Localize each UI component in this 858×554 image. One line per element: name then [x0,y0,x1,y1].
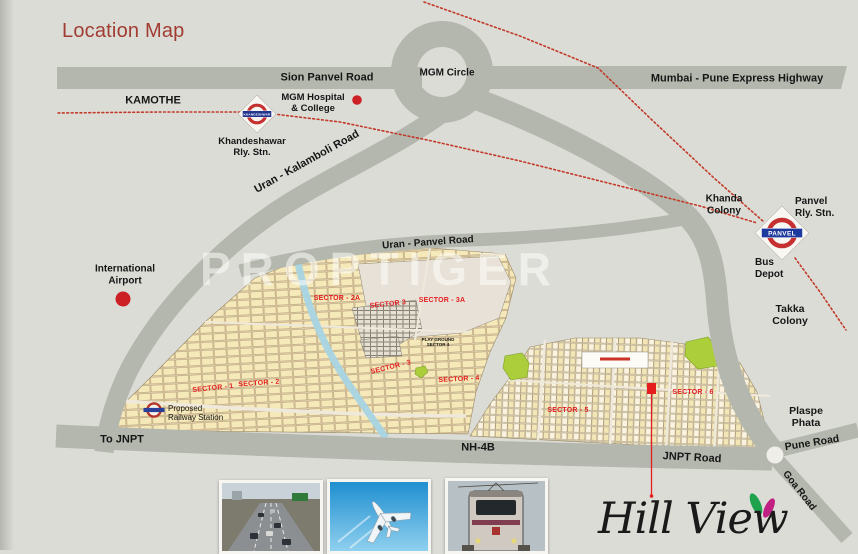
khanda-line2: Colony [706,205,743,217]
road-label-nh4b: NH-4B [461,442,495,455]
junction-circle [767,447,784,464]
page-title: Location Map [62,20,184,43]
building-strip-label [600,358,630,361]
station-label-khandeshawar: Khandeshawar Rly. Stn. [218,137,286,159]
place-label-airport: International Airport [95,264,155,287]
play-ground-label: PLAY GROUND SECTOR 4 [422,337,455,347]
place-label-khanda-colony: Khanda Colony [706,194,743,217]
place-label-mgm-hospital: MGM Hospital & College [281,93,344,115]
location-map-page: { "title": "Location Map", "watermark": … [0,0,858,550]
train-image [448,481,545,551]
panvel-line1: Panvel [795,196,834,208]
takka-line2: Colony [772,315,808,327]
station-logo-text: KHANDESHWAR [244,112,272,116]
mgm-hospital-line2: & College [281,104,344,115]
sector-label-3a: SECTOR - 3A [419,297,465,305]
park-green-1 [503,353,529,380]
photo-highway [219,480,323,554]
station-logo-khandeshawar: KHANDESHWAR [238,95,276,133]
brand-logotype: Hill View [598,494,788,544]
airplane-image [330,482,428,551]
airport-line2: Airport [95,275,155,287]
khandeshawar-line2: Rly. Stn. [218,148,286,159]
mgm-hospital-dot [352,95,362,105]
sector-label-2a: SECTOR - 2A [314,295,360,303]
photo-train [445,478,548,554]
proposed-line1: Proposed [168,404,223,413]
airport-line1: International [95,264,155,276]
station-logo-text: PANVEL [768,230,796,237]
place-label-plaspe-phata: Plaspe Phata [789,405,823,429]
highway-image [222,483,320,551]
road-label-sion-panvel: Sion Panvel Road [281,72,374,85]
road-label-to-jnpt: To JNPT [100,434,144,447]
plaspe-line1: Plaspe [789,405,823,417]
bus-depot-line2: Depot [755,269,783,281]
site-marker-plot [647,383,656,394]
road-label-mumbai-pune: Mumbai - Pune Express Highway [651,73,823,86]
station-namebar [144,408,165,412]
photo-airplane [327,479,431,554]
takka-line1: Takka [772,303,808,315]
proposed-line2: Railway Station [168,413,223,422]
play-ground-line2: SECTOR 4 [422,342,455,347]
place-label-bus-depot: Bus Depot [755,257,783,280]
sector-label-6: SECTOR - 6 [672,389,713,397]
airport-dot [116,292,131,307]
dense-gaothan-area-2 [360,336,402,358]
sector-label-5: SECTOR - 5 [547,407,588,415]
station-label-proposed: Proposed Railway Station [168,404,223,422]
khanda-line1: Khanda [706,194,743,206]
place-label-kamothe: KAMOTHE [125,95,181,108]
road-label-mgm-circle: MGM Circle [419,67,474,79]
station-label-panvel: Panvel Rly. Stn. [795,196,834,219]
panvel-line2: Rly. Stn. [795,208,834,220]
bus-depot-line1: Bus [755,257,783,269]
plaspe-line2: Phata [789,417,823,429]
place-label-takka-colony: Takka Colony [772,303,808,327]
